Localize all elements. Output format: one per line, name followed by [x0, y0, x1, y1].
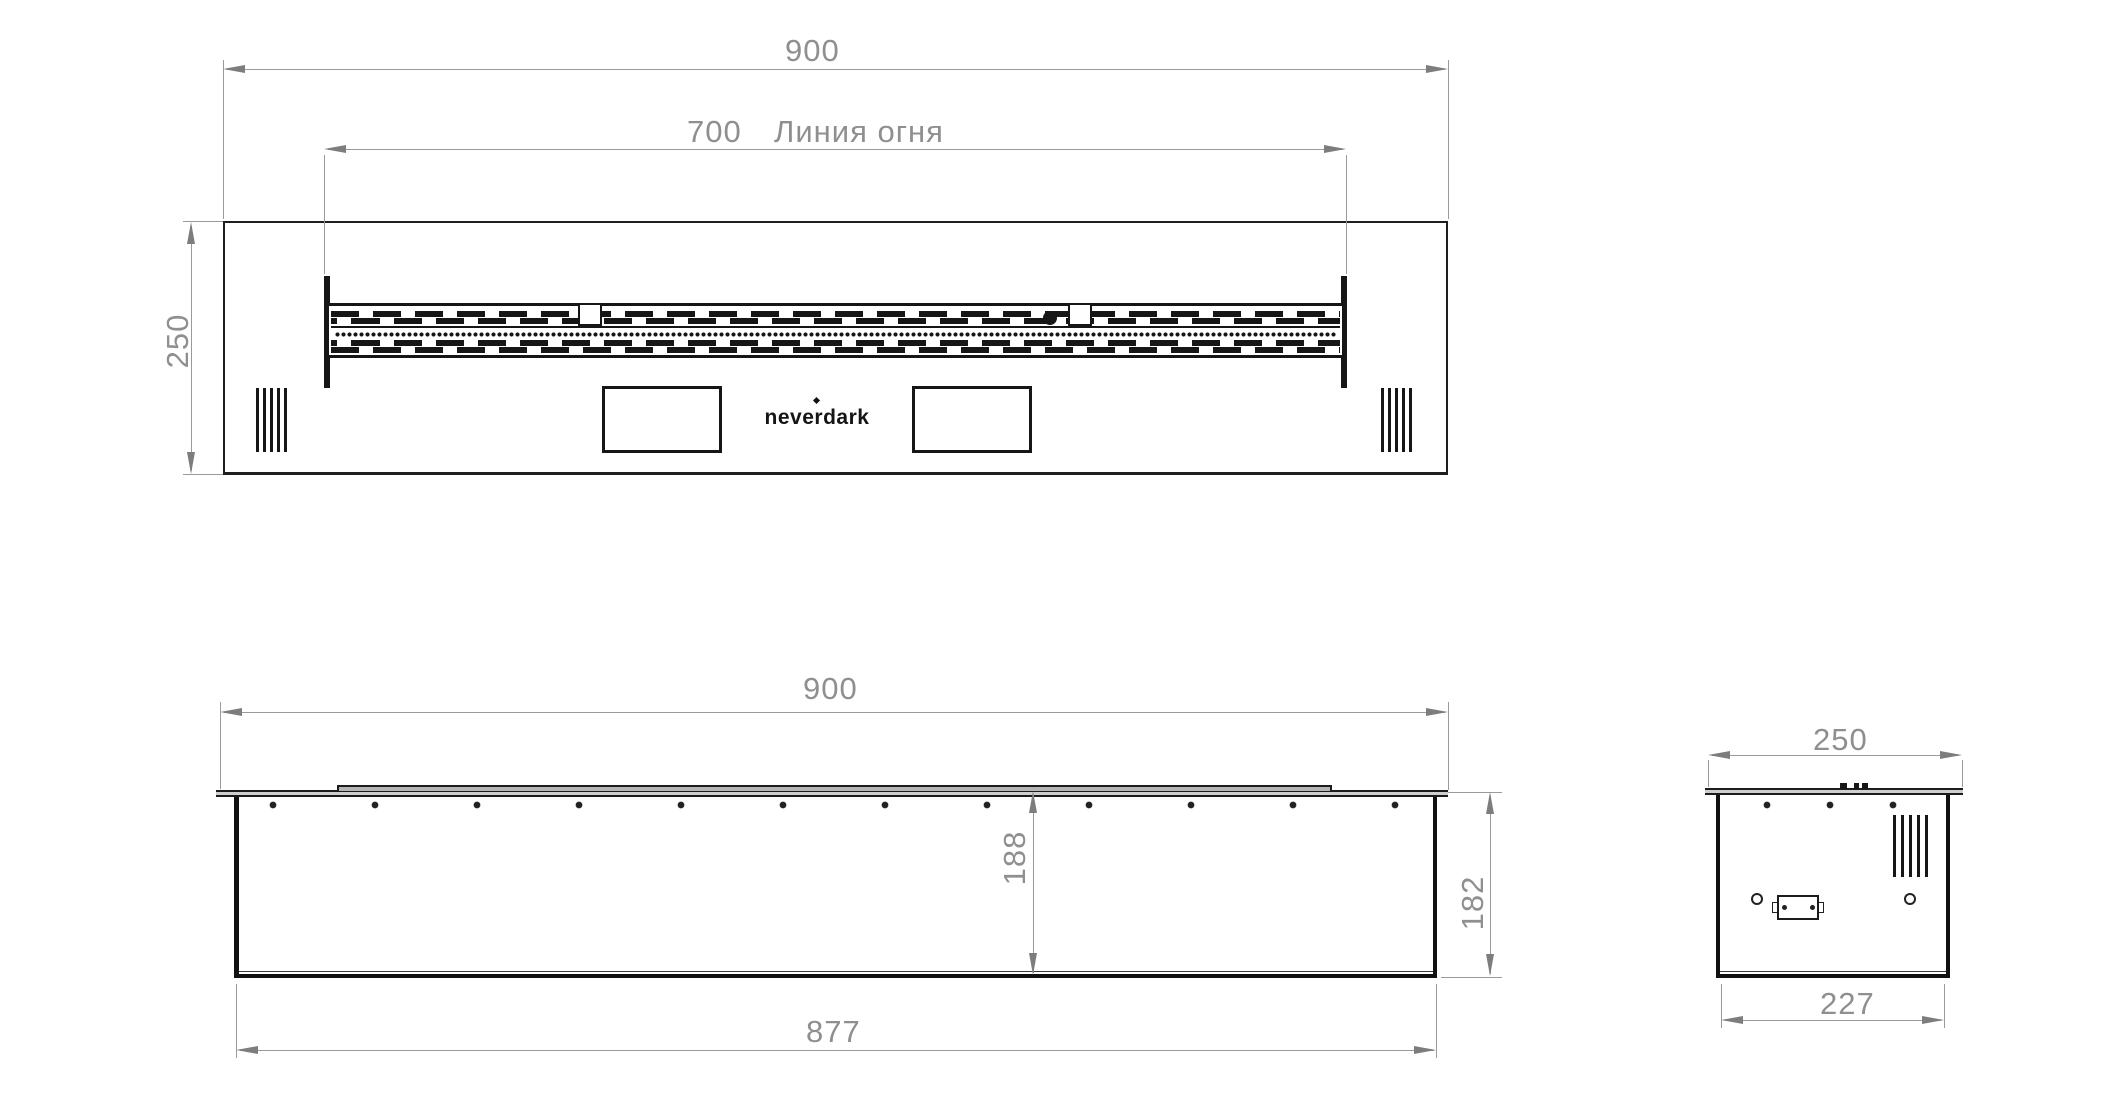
- dim-line-front-width: [224, 712, 1445, 713]
- arrowhead: [324, 145, 346, 153]
- arrowhead: [1486, 792, 1494, 814]
- burner-inner-edge: [331, 326, 1340, 328]
- arrowhead: [1922, 1016, 1944, 1024]
- arrowhead: [1426, 708, 1448, 716]
- terminal-screw: [1810, 905, 1815, 910]
- arrowhead: [223, 65, 245, 73]
- dim-label-top-depth: 250: [158, 281, 198, 401]
- extension-line: [1448, 702, 1449, 790]
- dim-label-fire-line-text: Линия огня: [774, 114, 944, 150]
- arrowhead: [236, 1046, 258, 1054]
- side-screw-row: [1763, 801, 1899, 809]
- extension-line: [1448, 60, 1449, 219]
- arrowhead: [220, 708, 242, 716]
- arrowhead: [1324, 145, 1346, 153]
- extension-line: [1962, 760, 1963, 787]
- arrowhead: [1940, 751, 1962, 759]
- igniter-plate-left: [578, 303, 602, 326]
- front-screw-row: [269, 801, 1403, 809]
- extension-line: [1346, 155, 1347, 274]
- arrowhead: [1414, 1046, 1436, 1054]
- dim-label-bottom-width: 877: [806, 1014, 861, 1050]
- front-view: 900 188 182 877: [0, 640, 1560, 1114]
- side-flange-clamp: [1854, 783, 1859, 789]
- side-hole-left: [1751, 893, 1763, 905]
- extension-line: [1441, 977, 1502, 978]
- dim-label-top-width: 900: [785, 33, 840, 69]
- extension-line: [1436, 984, 1437, 1058]
- burner-hatch-row: [331, 340, 1340, 346]
- burner-hatch-row: [331, 311, 1340, 317]
- technical-drawing-canvas: neverdark 900 700 Линия огня 250: [0, 0, 2112, 1114]
- top-view: neverdark 900 700 Линия огня 250: [0, 0, 2112, 500]
- burner-flame-holes: [335, 332, 1336, 337]
- side-view: 250 227: [1560, 640, 2112, 1114]
- arrowhead: [1426, 65, 1448, 73]
- vent-grille-right: [1381, 388, 1414, 452]
- side-body-inner-bottom-line: [1720, 971, 1946, 972]
- dim-line-bottom-width: [240, 1050, 1434, 1051]
- burner-frame: [329, 303, 1342, 358]
- terminal-screw: [1782, 905, 1787, 910]
- extension-line: [183, 474, 223, 475]
- extension-line: [223, 60, 224, 219]
- side-flange-clamp: [1840, 783, 1847, 789]
- igniter-plate-right: [1068, 303, 1092, 326]
- extension-line: [1708, 760, 1709, 787]
- dim-label-fire-line-value: 700: [687, 114, 742, 150]
- extension-line: [324, 155, 325, 274]
- service-opening-left: [602, 386, 722, 453]
- side-hole-right: [1904, 893, 1916, 905]
- dim-label-inner-depth: 188: [995, 798, 1035, 918]
- front-body-inner-bottom-line: [239, 971, 1433, 972]
- brand-logo: neverdark: [757, 406, 877, 430]
- sensor-dot: [1043, 311, 1057, 325]
- arrowhead: [1721, 1016, 1743, 1024]
- front-burner-lip: [337, 785, 1332, 791]
- service-opening-right: [912, 386, 1032, 453]
- burner-hatch-row: [331, 318, 1340, 324]
- arrowhead: [187, 452, 195, 474]
- dim-label-side-bottom-width: 227: [1820, 986, 1875, 1022]
- arrowhead: [1708, 751, 1730, 759]
- extension-line: [1944, 984, 1945, 1028]
- dim-label-side-width: 250: [1813, 722, 1868, 758]
- front-flange: [216, 790, 1448, 797]
- side-flange-clamp: [1862, 783, 1868, 789]
- side-vent-grille: [1893, 815, 1929, 877]
- dim-label-front-width: 900: [803, 671, 858, 707]
- front-body: [234, 797, 1437, 978]
- dim-label-body-height: 182: [1453, 843, 1493, 963]
- arrowhead: [187, 222, 195, 244]
- dim-line-top-width: [227, 69, 1445, 70]
- arrowhead: [1029, 953, 1037, 975]
- burner-hatch-row: [331, 347, 1340, 353]
- side-flange: [1705, 788, 1963, 795]
- vent-grille-left: [256, 388, 289, 452]
